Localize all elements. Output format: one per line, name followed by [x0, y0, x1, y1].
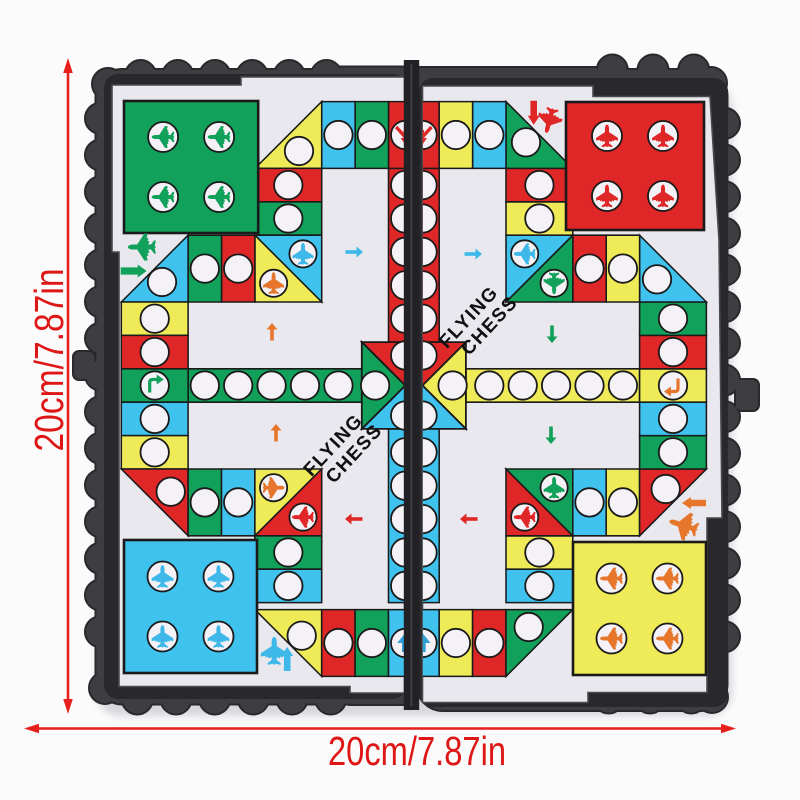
svg-text:20cm/7.87in: 20cm/7.87in — [328, 728, 506, 774]
svg-text:20cm/7.87in: 20cm/7.87in — [26, 269, 72, 452]
